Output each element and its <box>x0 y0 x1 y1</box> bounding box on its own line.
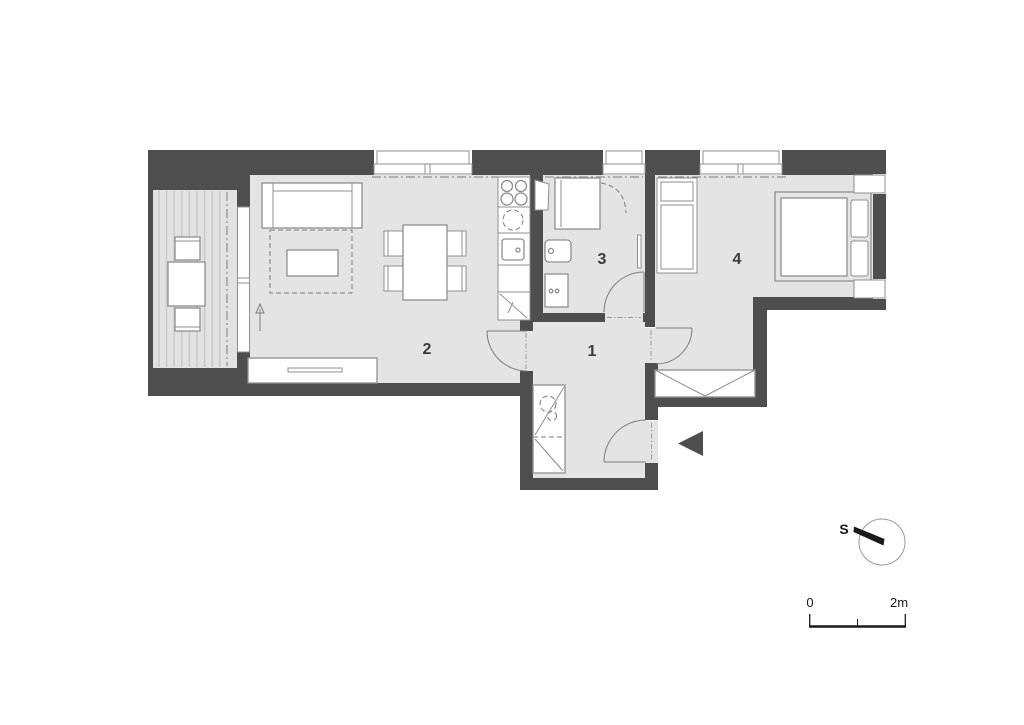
dining-table <box>403 225 447 300</box>
compass-south-label: S <box>839 521 848 537</box>
scale-end-label: 2m <box>890 595 908 610</box>
wall-hall-right-low <box>645 463 658 478</box>
bedroom-wardrobe <box>655 370 755 397</box>
dining-chair <box>384 231 403 256</box>
crib <box>657 178 697 273</box>
wall-top-left-block <box>148 150 237 190</box>
kitchen-counter <box>498 265 530 292</box>
opening-hall-bedroom <box>645 328 655 363</box>
balcony-table <box>168 262 205 306</box>
pillow <box>851 241 868 276</box>
wall-living-bottom <box>237 383 533 396</box>
room-label-bedroom: 4 <box>733 251 742 268</box>
wall-balcony-left <box>148 190 153 368</box>
wall-bathroom-bedroom <box>645 175 655 327</box>
hall-wardrobe <box>533 385 565 473</box>
wall-balcony-bottom <box>148 368 237 396</box>
shower <box>555 178 600 229</box>
dining-chair <box>384 266 403 291</box>
shaft <box>535 180 549 210</box>
pillow <box>851 200 868 237</box>
kitchen-hood <box>498 207 530 233</box>
wall-bedroom-bottom <box>753 297 886 310</box>
wall-bedroom-leg-bottom <box>645 397 767 407</box>
dining-chair <box>447 231 466 256</box>
towel-rail <box>638 235 642 268</box>
scale-start-label: 0 <box>806 595 813 610</box>
nightstand-top <box>854 175 885 193</box>
coffee-table <box>287 250 338 276</box>
sofa <box>262 183 362 228</box>
room-label-hall: 1 <box>588 343 597 360</box>
room-label-bathroom: 3 <box>598 251 607 268</box>
compass: S <box>839 519 905 565</box>
nightstand-bottom <box>854 280 885 298</box>
entrance-arrow-icon <box>678 431 703 456</box>
balcony-chair-top <box>175 237 200 260</box>
double-bed <box>775 192 871 281</box>
hall-furniture <box>533 385 565 473</box>
washing-machine <box>545 274 568 307</box>
room-label-living: 2 <box>423 341 432 358</box>
wall-top <box>237 150 886 175</box>
floor-plan-page: 1 2 3 4 S 0 2m <box>0 0 1024 725</box>
balcony-chair-bottom <box>175 308 200 331</box>
wall-hall-bottom <box>520 478 658 490</box>
sideboard-handle <box>288 368 342 372</box>
wall-living-left-upper <box>237 175 250 207</box>
scale-bar: 0 2m <box>806 595 908 627</box>
floor-plan-drawing: 1 2 3 4 S 0 2m <box>0 0 1024 725</box>
dining-chair <box>447 266 466 291</box>
mattress <box>781 198 847 276</box>
